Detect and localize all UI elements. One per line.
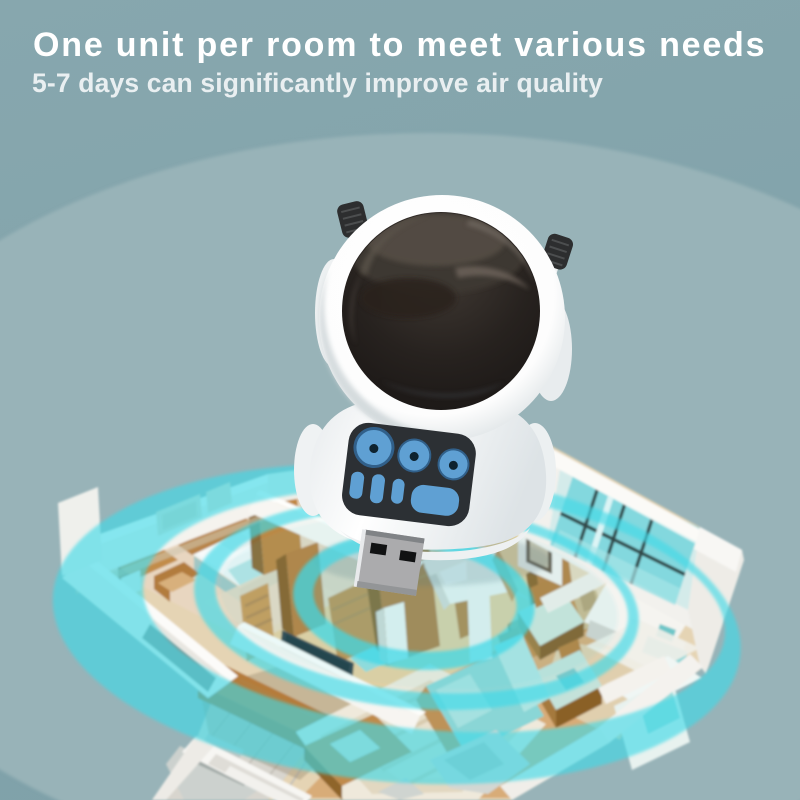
svg-text:5-7 days can significantly imp: 5-7 days can significantly improve air q… [32,68,603,98]
svg-text:One unit per room to meet vari: One unit per room to meet various needs [33,26,766,64]
